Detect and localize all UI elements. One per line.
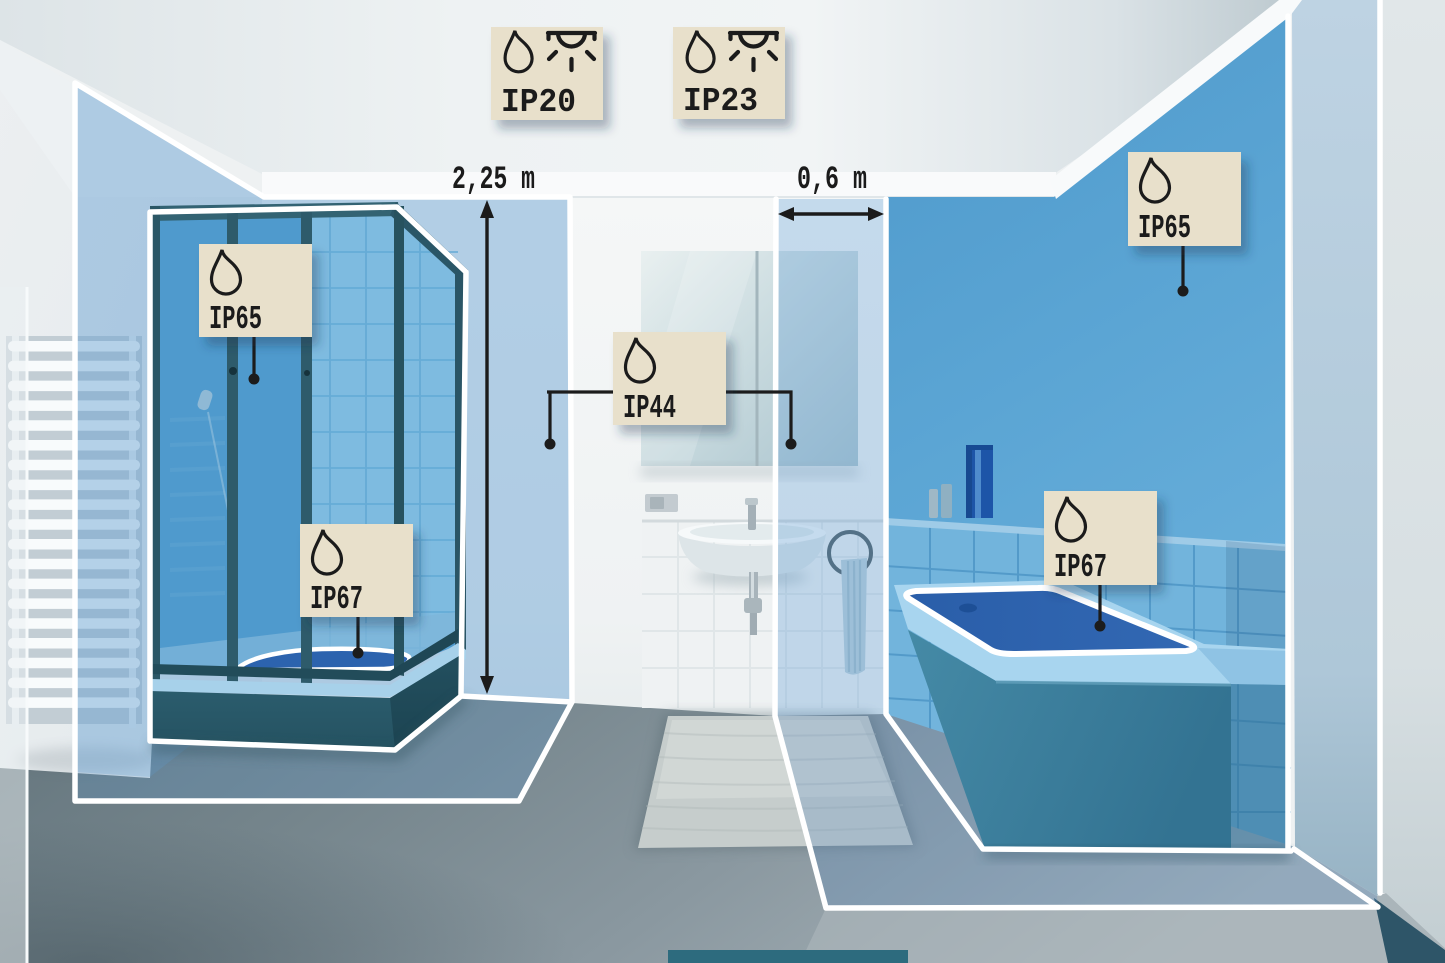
svg-text:IP44: IP44 — [623, 390, 676, 427]
svg-text:IP67: IP67 — [310, 581, 363, 618]
svg-text:0,6 m: 0,6 m — [797, 161, 867, 198]
svg-text:IP65: IP65 — [209, 301, 262, 338]
svg-text:IP23: IP23 — [683, 83, 758, 120]
svg-text:IP67: IP67 — [1054, 549, 1107, 586]
svg-text:2,25 m: 2,25 m — [452, 161, 535, 198]
svg-text:IP65: IP65 — [1138, 210, 1191, 247]
svg-text:IP20: IP20 — [501, 84, 576, 121]
